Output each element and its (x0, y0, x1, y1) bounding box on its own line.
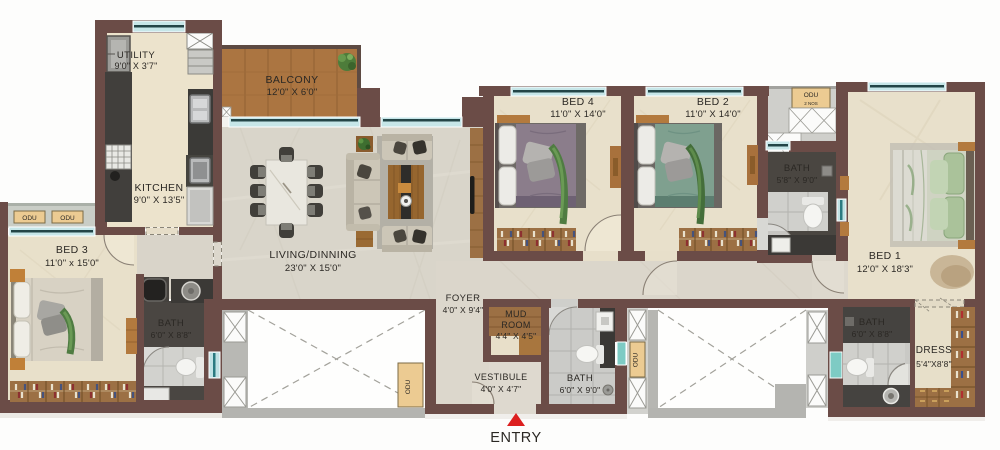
svg-text:BED 1: BED 1 (869, 250, 901, 262)
svg-text:BATH: BATH (158, 318, 184, 329)
svg-text:5'8" X 9'0": 5'8" X 9'0" (777, 175, 818, 185)
svg-text:ODU: ODU (804, 92, 819, 99)
svg-text:ENTRY: ENTRY (490, 430, 541, 446)
svg-text:BED 3: BED 3 (56, 244, 88, 256)
svg-text:4'0" X 9'4": 4'0" X 9'4" (443, 305, 484, 315)
svg-text:BALCONY: BALCONY (266, 74, 319, 86)
svg-text:ODU: ODU (633, 352, 640, 367)
svg-text:ODU: ODU (405, 379, 412, 394)
svg-text:LIVING/DINNING: LIVING/DINNING (269, 249, 356, 261)
svg-text:ODU: ODU (22, 215, 37, 222)
svg-text:ODU: ODU (60, 215, 75, 222)
svg-text:12'0" X 6'0": 12'0" X 6'0" (267, 87, 318, 98)
svg-text:KITCHEN: KITCHEN (135, 182, 184, 194)
svg-text:6'0" X 8'8": 6'0" X 8'8" (151, 330, 192, 340)
svg-text:BED 2: BED 2 (697, 96, 729, 108)
svg-text:9'0" X 13'5": 9'0" X 13'5" (134, 195, 185, 206)
svg-text:5'4"X8'8": 5'4"X8'8" (916, 359, 952, 369)
svg-text:23'0" X 15'0": 23'0" X 15'0" (285, 263, 341, 274)
svg-text:BATH: BATH (784, 163, 810, 174)
svg-text:11'0" X 14'0": 11'0" X 14'0" (550, 109, 606, 120)
svg-text:12'0" X 18'3": 12'0" X 18'3" (857, 264, 913, 275)
svg-text:BED 4: BED 4 (562, 96, 594, 108)
svg-text:4'0" X 4'7": 4'0" X 4'7" (481, 384, 522, 394)
svg-text:11'0" x 15'0": 11'0" x 15'0" (45, 258, 99, 269)
svg-text:FOYER: FOYER (446, 293, 481, 304)
svg-text:2 NOS: 2 NOS (804, 101, 818, 106)
svg-text:UTILITY: UTILITY (117, 50, 155, 61)
svg-text:DRESS: DRESS (916, 345, 952, 356)
svg-text:6'0" X 8'8": 6'0" X 8'8" (852, 329, 893, 339)
svg-text:9'0" X 3'7": 9'0" X 3'7" (114, 61, 157, 71)
svg-text:VESTIBULE: VESTIBULE (474, 372, 527, 382)
svg-text:4'4" X 4'5": 4'4" X 4'5" (496, 331, 537, 341)
svg-text:BATH: BATH (859, 317, 885, 328)
svg-text:BATH: BATH (567, 373, 593, 384)
svg-text:6'0" X 9'0": 6'0" X 9'0" (560, 385, 601, 395)
svg-text:MUD: MUD (505, 309, 527, 319)
svg-text:11'0" X 14'0": 11'0" X 14'0" (685, 109, 741, 120)
svg-text:ROOM: ROOM (501, 320, 531, 330)
